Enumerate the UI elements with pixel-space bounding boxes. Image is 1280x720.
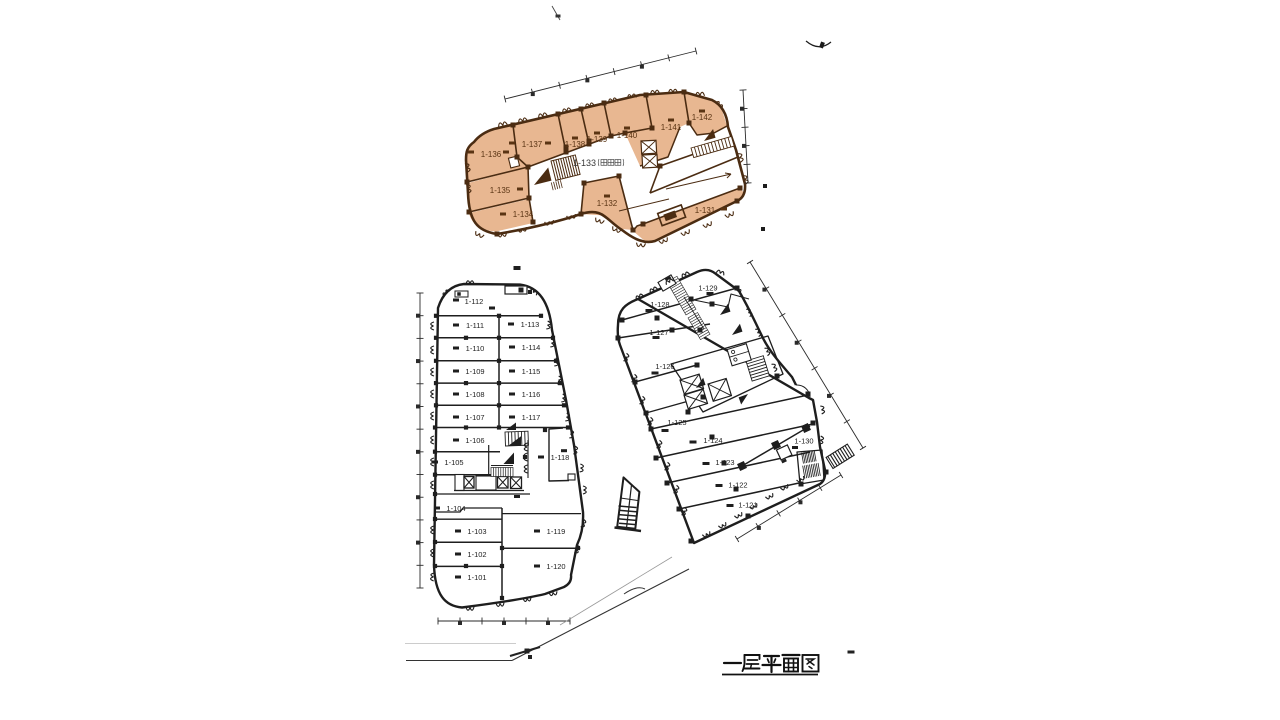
svg-text:1-132: 1-132: [597, 199, 618, 208]
svg-text:1-129: 1-129: [698, 284, 717, 293]
svg-text:1-104: 1-104: [446, 504, 465, 513]
svg-text:1-114: 1-114: [522, 343, 541, 352]
svg-text:1-107: 1-107: [465, 413, 484, 422]
svg-text:1-130: 1-130: [794, 437, 813, 446]
svg-text:1-128: 1-128: [650, 300, 669, 309]
svg-text:1-137: 1-137: [522, 140, 543, 149]
svg-text:1-116: 1-116: [522, 390, 541, 399]
svg-text:1-109: 1-109: [465, 367, 484, 376]
svg-text:1-138: 1-138: [565, 140, 586, 149]
svg-text:1-112: 1-112: [465, 297, 484, 306]
svg-text:1-139: 1-139: [587, 135, 608, 144]
svg-text:1-140: 1-140: [617, 131, 638, 140]
svg-text:1-142: 1-142: [692, 113, 713, 122]
svg-text:1-108: 1-108: [465, 390, 484, 399]
svg-text:1-119: 1-119: [547, 527, 566, 536]
svg-text:1-125: 1-125: [667, 418, 686, 427]
svg-text:1-115: 1-115: [522, 367, 541, 376]
svg-text:1-134: 1-134: [513, 210, 534, 219]
svg-text:1-126: 1-126: [655, 362, 674, 371]
svg-text:1-113: 1-113: [521, 320, 540, 329]
svg-text:1-103: 1-103: [467, 527, 486, 536]
svg-text:1-124: 1-124: [703, 436, 722, 445]
svg-text:1-121: 1-121: [738, 501, 757, 510]
svg-text:1-133: 1-133: [573, 158, 596, 168]
svg-text:1-111: 1-111: [466, 321, 484, 330]
svg-text:1-110: 1-110: [466, 344, 485, 353]
svg-text:1-135: 1-135: [490, 186, 511, 195]
svg-text:1-102: 1-102: [467, 550, 486, 559]
svg-text:1-131: 1-131: [695, 206, 716, 215]
svg-text:1-120: 1-120: [546, 562, 565, 571]
svg-text:1-123: 1-123: [715, 458, 734, 467]
svg-text:1-136: 1-136: [481, 150, 502, 159]
svg-text:1-122: 1-122: [728, 481, 747, 490]
svg-text:1-117: 1-117: [522, 413, 541, 422]
svg-text:1-141: 1-141: [661, 123, 682, 132]
svg-text:1-118: 1-118: [551, 453, 570, 462]
svg-text:1-101: 1-101: [467, 573, 486, 582]
svg-text:1-127: 1-127: [649, 328, 668, 337]
svg-text:1-105: 1-105: [444, 458, 463, 467]
svg-text:1-106: 1-106: [465, 436, 484, 445]
